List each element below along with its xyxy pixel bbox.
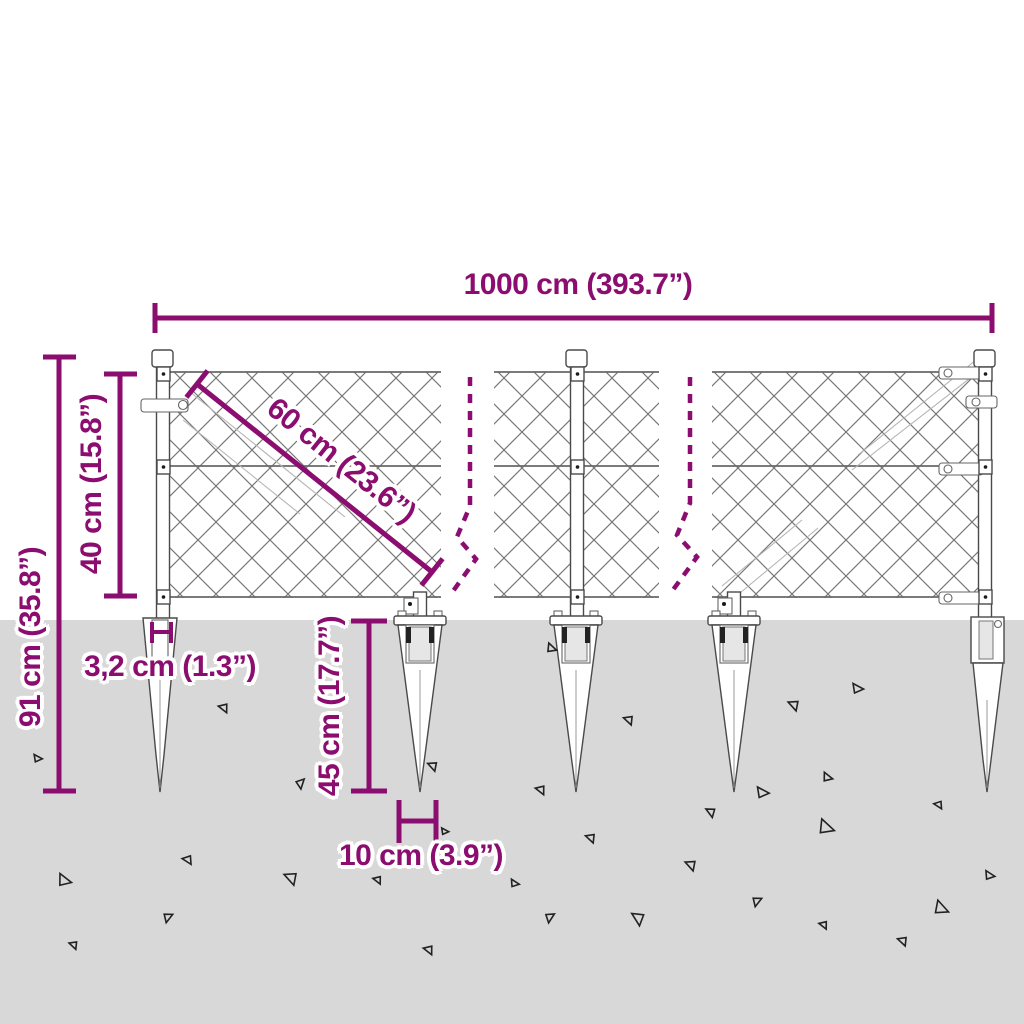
product-dimension-diagram: 1000 cm (393.7”) 91 cm (35.8”) 40 cm (15…	[0, 0, 1024, 1024]
post-right-cap	[974, 350, 995, 367]
dimension-label-spike-length: 45 cm (17.7”)	[313, 616, 347, 796]
dimension-label-mesh-height: 40 cm (15.8”)	[75, 394, 109, 574]
post-middle-cap	[566, 350, 587, 367]
fence-illustration	[0, 0, 1024, 1024]
dimension-label-total-height: 91 cm (35.8”)	[14, 547, 48, 727]
dimension-label-post-width: 3,2 cm (1.3”)	[84, 650, 256, 684]
post-left-cap	[152, 350, 173, 367]
dimension-label-total-width: 1000 cm (393.7”)	[464, 268, 693, 302]
dimension-label-spike-width: 10 cm (3.9”)	[339, 839, 503, 873]
